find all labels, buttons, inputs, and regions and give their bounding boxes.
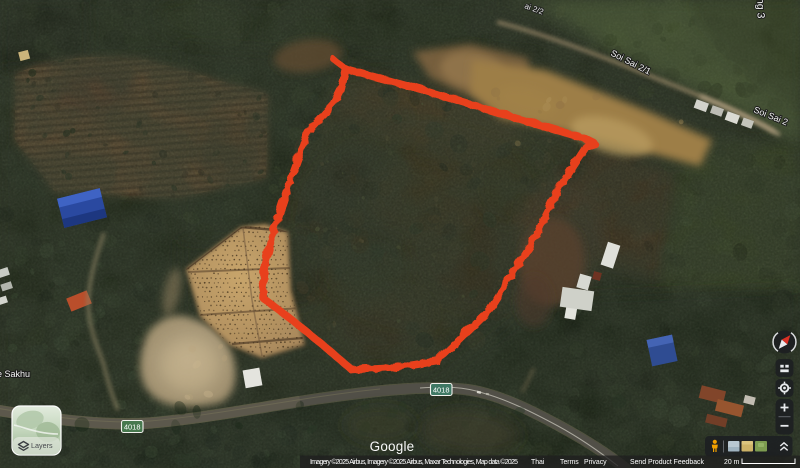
svg-text:Imagery ©2025 Airbus, Imagery: Imagery ©2025 Airbus, Imagery ©2025 Airb… — [310, 458, 518, 466]
svg-text:Google: Google — [370, 439, 415, 454]
svg-text:Terms: Terms — [560, 459, 579, 466]
svg-text:Layers: Layers — [31, 441, 53, 450]
svg-text:Thai: Thai — [531, 459, 545, 466]
svg-text:4018: 4018 — [124, 423, 141, 432]
svg-text:Yang 3: Yang 3 — [754, 0, 767, 19]
svg-text:4018: 4018 — [433, 386, 450, 395]
svg-text:Privacy: Privacy — [584, 459, 607, 466]
svg-text:e Sakhu: e Sakhu — [0, 369, 30, 379]
svg-text:Send Product Feedback: Send Product Feedback — [630, 459, 704, 466]
svg-text:20 m: 20 m — [724, 459, 740, 466]
